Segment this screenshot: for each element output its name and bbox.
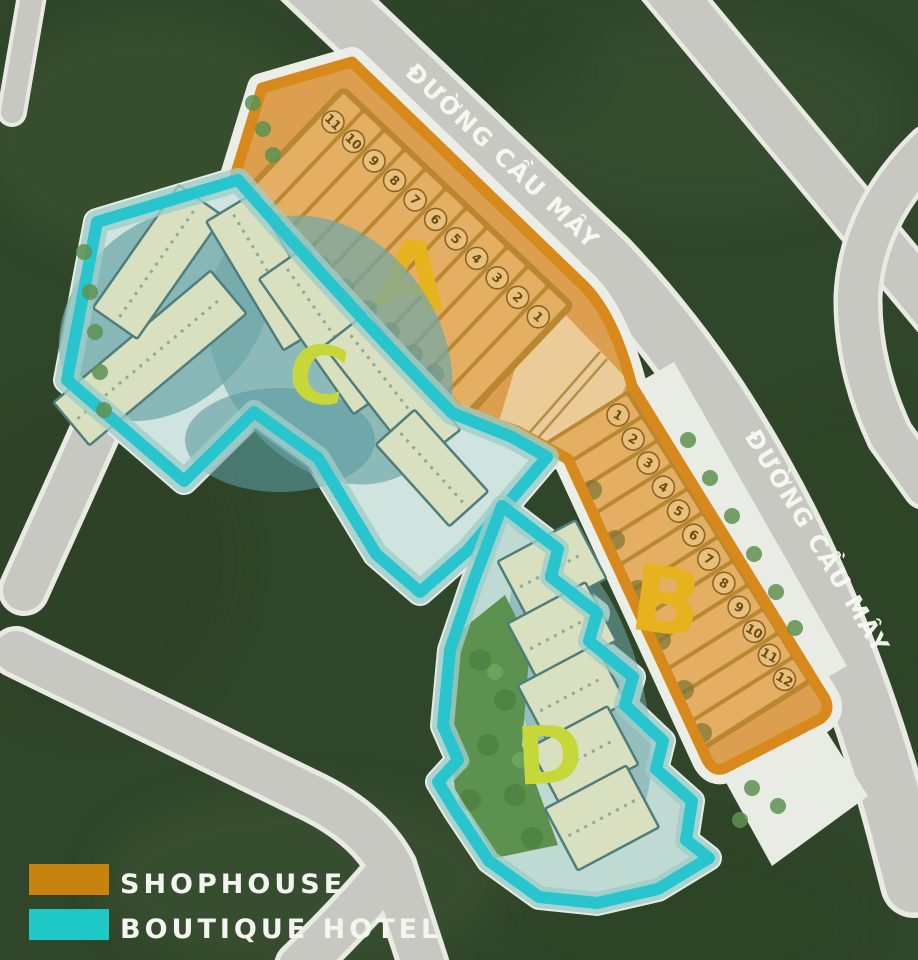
tree-icon	[487, 664, 503, 680]
tree-icon	[732, 812, 748, 828]
tree-icon	[255, 121, 271, 137]
tree-icon	[746, 546, 762, 562]
legend-swatch-shophouse	[29, 864, 109, 895]
legend-swatch-boutique-hotel	[29, 909, 109, 940]
tree-icon	[265, 147, 281, 163]
tree-icon	[245, 95, 261, 111]
tree-icon	[76, 244, 92, 260]
tree-icon	[680, 432, 696, 448]
zone-d-label: D	[514, 707, 585, 803]
tree-icon	[82, 284, 98, 300]
tree-icon	[770, 798, 786, 814]
tree-icon	[768, 584, 784, 600]
tree-icon	[724, 508, 740, 524]
zone-b-label: B	[624, 544, 708, 660]
tree-icon	[477, 734, 499, 756]
tree-icon	[702, 470, 718, 486]
tree-icon	[521, 827, 543, 849]
tree-icon	[744, 780, 760, 796]
legend-label-shophouse: SHOPHOUSE	[120, 869, 346, 900]
tree-icon	[494, 689, 516, 711]
tree-icon	[469, 649, 491, 671]
legend-label-boutique-hotel: BOUTIQUE HOTEL	[120, 914, 442, 945]
tree-icon	[92, 364, 108, 380]
tree-icon	[87, 324, 103, 340]
site-map: 1110987654321 123456789101112 A B C D	[0, 0, 918, 960]
tree-icon	[96, 402, 112, 418]
tree-icon	[787, 620, 803, 636]
